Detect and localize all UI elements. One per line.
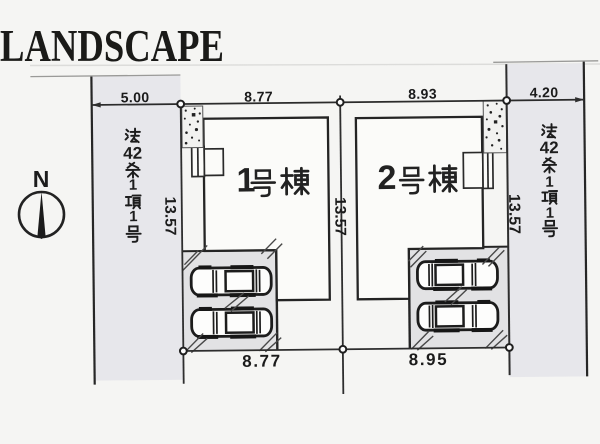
- svg-text:1: 1: [236, 161, 255, 199]
- svg-text:4.20: 4.20: [530, 84, 559, 100]
- svg-text:1: 1: [129, 208, 138, 225]
- svg-text:2: 2: [377, 159, 396, 197]
- svg-text:13.57: 13.57: [331, 197, 348, 236]
- svg-text:42: 42: [123, 144, 142, 163]
- svg-text:N: N: [33, 166, 50, 192]
- svg-text:8.77: 8.77: [244, 88, 273, 104]
- svg-text:1: 1: [546, 205, 555, 222]
- svg-text:5.00: 5.00: [121, 89, 150, 105]
- svg-text:1: 1: [545, 174, 554, 191]
- svg-text:13.57: 13.57: [505, 194, 522, 234]
- svg-text:8.77: 8.77: [242, 351, 282, 370]
- svg-text:8.93: 8.93: [408, 86, 437, 102]
- svg-text:1: 1: [129, 177, 138, 194]
- svg-text:13.57: 13.57: [161, 197, 178, 236]
- svg-text:LANDSCAPE: LANDSCAPE: [0, 21, 224, 71]
- svg-text:42: 42: [540, 138, 559, 157]
- svg-text:8.95: 8.95: [409, 350, 449, 369]
